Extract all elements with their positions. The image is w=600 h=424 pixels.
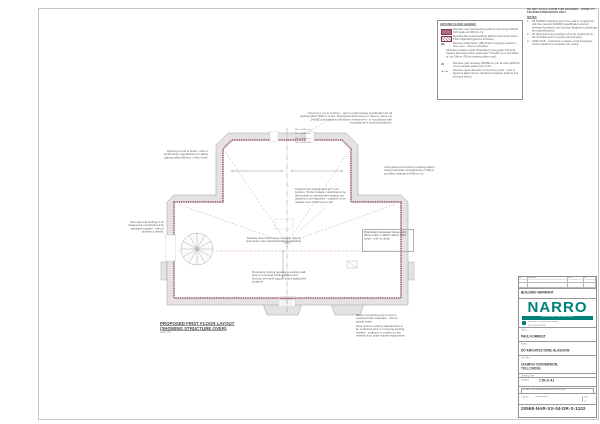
meta-row: Cad ref 20568-NAR-XX-04 Rev P1 [519, 394, 596, 405]
loadbearing-wall-swatch [441, 29, 452, 35]
annotation-wall-plate: 38mm rod reinforcement rows to existing … [356, 314, 406, 351]
stair-opening [166, 235, 176, 261]
title-block: Rev Description Date Drn BUILDING WARRAN… [518, 276, 597, 418]
stage-label: BUILDING WARRANT [521, 291, 594, 295]
apex-callout-box [275, 219, 293, 229]
job-title: CHURCH CONVERSION, [521, 363, 594, 367]
legend-row: ◄—► Denotes span direction of new floor … [440, 69, 520, 78]
note-item: 2. All dimensions and setting out to be … [527, 33, 597, 40]
span-direction-arrow-icon: ◄—► [441, 70, 448, 73]
note-item: 3. CDM 2015 - contractor to advise of al… [527, 40, 597, 47]
drawing-sheet: DO NOT SCALE FROM THIS DRAWING - WORK TO… [0, 0, 600, 424]
legend-row: All timber (unless noted otherwise) to b… [440, 49, 520, 62]
east-detail [347, 261, 357, 268]
annotation-hanger-detail: Proprietary concealed hanger with 38mm p… [362, 229, 414, 252]
annotation-temporary-shoring: Temporary shoring required to existing w… [252, 271, 307, 297]
legend-row: SB Denotes steel beam (SB) lintel to sup… [440, 42, 520, 49]
annotation-steel-frame: Existing steel frame to be removed; refe… [245, 237, 303, 250]
legend-row: Denotes new load bearing wall formed usi… [440, 28, 520, 35]
annotation-flue-joisting: Flooring is not to continue - refer to p… [300, 112, 392, 138]
legend-row: JS Denotes joist strutting (38x89mm min … [440, 62, 520, 69]
annotation-truss-arrangement: Typical truss arrangement at T roof junc… [295, 188, 347, 220]
agent-row: Agent DO ARCHITECTURE GLASGOW [519, 342, 596, 356]
plan-title: PROPOSED FIRST FLOOR LAYOUT (SHOWING STR… [160, 321, 260, 337]
agent-name: DO ARCHITECTURE GLASGOW [521, 349, 594, 353]
steel-beam-key: SB [441, 43, 444, 46]
caution-row: If in doubt - ask. Confirm all dimension… [519, 387, 596, 395]
narro-logo: NARRO [521, 300, 594, 315]
revision-table: Rev Description Date Drn [519, 277, 596, 289]
client-name: PAUL FORREST [521, 335, 594, 339]
narro-mark-icon [522, 321, 526, 325]
annotation-rafter-strengthening: Joist panels to be fixed to existing raf… [384, 166, 436, 185]
legend-title: GROUND FLOOR LEGEND: [440, 23, 520, 26]
do-not-scale-header: DO NOT SCALE FROM THIS DRAWING - WORK TO… [527, 8, 597, 14]
joist-boarding-swatch [441, 36, 452, 42]
annotation-stair: New stair and landing to be designed & m… [126, 221, 164, 247]
stage-row: BUILDING WARRANT [519, 289, 596, 299]
logo-block: NARRO Edinburgh Glasgow Stirling Dundee … [519, 299, 596, 328]
scale-value: 1:50 @ A1 [539, 379, 594, 383]
buttress-west [161, 262, 167, 280]
client-row: Client PAUL FORREST [519, 328, 596, 342]
drawing-number: 20568-NAR-XX-04-DR-S-1102 [521, 406, 594, 411]
spiral-stair [181, 233, 213, 265]
ground-floor-legend: GROUND FLOOR LEGEND: Denotes new load be… [437, 20, 523, 100]
buttress-east [408, 262, 414, 280]
beam-label-cluster: SB1 s over SB2 s over SB3 s over SB4 s o… [263, 129, 303, 147]
address-block: Narro House, 3 Woodside Place, Glasgow G… [521, 321, 594, 328]
revision-value: P1 [584, 401, 594, 402]
notes-block: DO NOT SCALE FROM THIS DRAWING - WORK TO… [527, 8, 597, 47]
office-bar: Edinburgh Glasgow Stirling Dundee Invern… [522, 316, 593, 321]
scale-row: Scale(s) 1:50 @ A1 [519, 378, 596, 387]
note-item: 1. All NARRO drawings are to be read in … [527, 20, 597, 33]
annotation-glazing: Opening to roof to lands - refer to perf… [162, 150, 208, 169]
job-title-row: Job Title CHURCH CONVERSION, TOLLCROSS [519, 356, 596, 374]
legend-row: Denotes floor joist boarding laid/formed… [440, 35, 520, 42]
cad-ref: 20568-NAR-XX-04 [535, 396, 580, 398]
joist-strutting-key: JS [441, 63, 444, 66]
notes-title: NOTES [527, 16, 597, 19]
plan-scale-note: Scale 1:50 [160, 331, 260, 334]
drawing-number-row: 20568-NAR-XX-04-DR-S-1102 [519, 405, 596, 417]
